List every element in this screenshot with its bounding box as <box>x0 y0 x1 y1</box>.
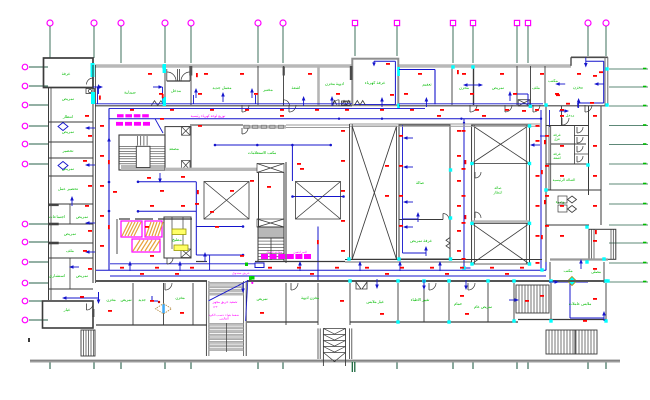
svg-text:مخزن: مخزن <box>106 298 115 302</box>
svg-text:مصعد: مصعد <box>169 146 179 151</box>
svg-text:مدخل: مدخل <box>566 113 575 118</box>
svg-text:صيدلية: صيدلية <box>124 90 136 95</box>
svg-text:مخزن ادوية: مخزن ادوية <box>301 295 319 300</box>
svg-text:تغيير الاطباء: تغيير الاطباء <box>411 297 430 302</box>
svg-text:اشعة: اشعة <box>292 85 301 90</box>
svg-text:مطبخ: مطبخ <box>172 237 182 242</box>
svg-text:مكتب: مكتب <box>548 78 558 83</box>
svg-text:مدخل: مدخل <box>171 88 181 93</box>
svg-text:اجتماعات: اجتماعات <box>49 214 65 219</box>
svg-text:مخزن: مخزن <box>325 81 335 86</box>
svg-text:مخزن: مخزن <box>175 296 184 300</box>
svg-text:تمريض: تمريض <box>492 85 504 90</box>
svg-text:حمام: حمام <box>454 301 463 306</box>
svg-text:جديد: جديد <box>138 298 146 302</box>
svg-text:مقاعد انتظار: مقاعد انتظار <box>265 250 283 254</box>
svg-text:غرفة تمريض: غرفة تمريض <box>410 238 432 243</box>
svg-text:مختبر: مختبر <box>262 87 273 92</box>
svg-text:وضوء: وضوء <box>556 200 565 204</box>
svg-text:تمريض: تمريض <box>64 231 76 236</box>
svg-text:استشاري: استشاري <box>49 273 65 278</box>
svg-text:تمريض: تمريض <box>76 214 88 219</box>
svg-text:العالمي: العالمي <box>219 317 228 321</box>
svg-text:ملابس عاملات: ملابس عاملات <box>569 301 592 306</box>
svg-text:معمل جديد: معمل جديد <box>212 85 231 90</box>
svg-text:تصعيد حريق مجهز: تصعيد حريق مجهز <box>212 300 238 304</box>
svg-text:توزيع لوحة كهرباء رئيسية: توزيع لوحة كهرباء رئيسية <box>191 114 226 118</box>
svg-text:للمراجعين: للمراجعين <box>293 250 306 254</box>
svg-text:صالة: صالة <box>416 180 425 185</box>
svg-text:تمريض: تمريض <box>120 298 131 302</box>
svg-text:انتظار: انتظار <box>62 114 73 119</box>
svg-text:غرفة كهرباء: غرفة كهرباء <box>365 80 386 85</box>
svg-text:ملف: ملف <box>532 85 540 90</box>
svg-text:مكتب الاستعلامات: مكتب الاستعلامات <box>248 150 276 155</box>
svg-text:مخزن: مخزن <box>459 85 469 90</box>
svg-text:تمريض: تمريض <box>62 96 74 101</box>
svg-text:تحضير: تحضير <box>61 148 73 153</box>
svg-text:تعقيم: تعقيم <box>422 82 431 87</box>
svg-text:صالة: صالة <box>494 185 502 190</box>
svg-text:الصالة الرئيسية: الصالة الرئيسية <box>553 177 576 182</box>
svg-text:حريق صندوق: حريق صندوق <box>232 271 250 275</box>
svg-text:تمريض عام: تمريض عام <box>474 304 492 309</box>
svg-text:انتظار: انتظار <box>493 190 503 195</box>
svg-text:ادوية: ادوية <box>336 81 344 86</box>
svg-text:ملف: ملف <box>66 248 74 253</box>
svg-text:اشعة: اشعة <box>553 156 560 160</box>
svg-text:مخزن: مخزن <box>573 85 583 90</box>
svg-text:غيار ملابس: غيار ملابس <box>366 299 383 304</box>
svg-text:تمريض: تمريض <box>76 273 88 278</box>
svg-text:غرفة: غرفة <box>62 71 71 76</box>
svg-text:١٢٣: ١٢٣ <box>213 305 218 309</box>
svg-text:تمريض: تمريض <box>256 297 267 301</box>
svg-text:غيار: غيار <box>63 307 71 312</box>
svg-text:مكتب: مكتب <box>563 268 572 273</box>
svg-text:تحضير عمل: تحضير عمل <box>58 186 78 191</box>
svg-text:عزل: عزل <box>554 137 560 141</box>
